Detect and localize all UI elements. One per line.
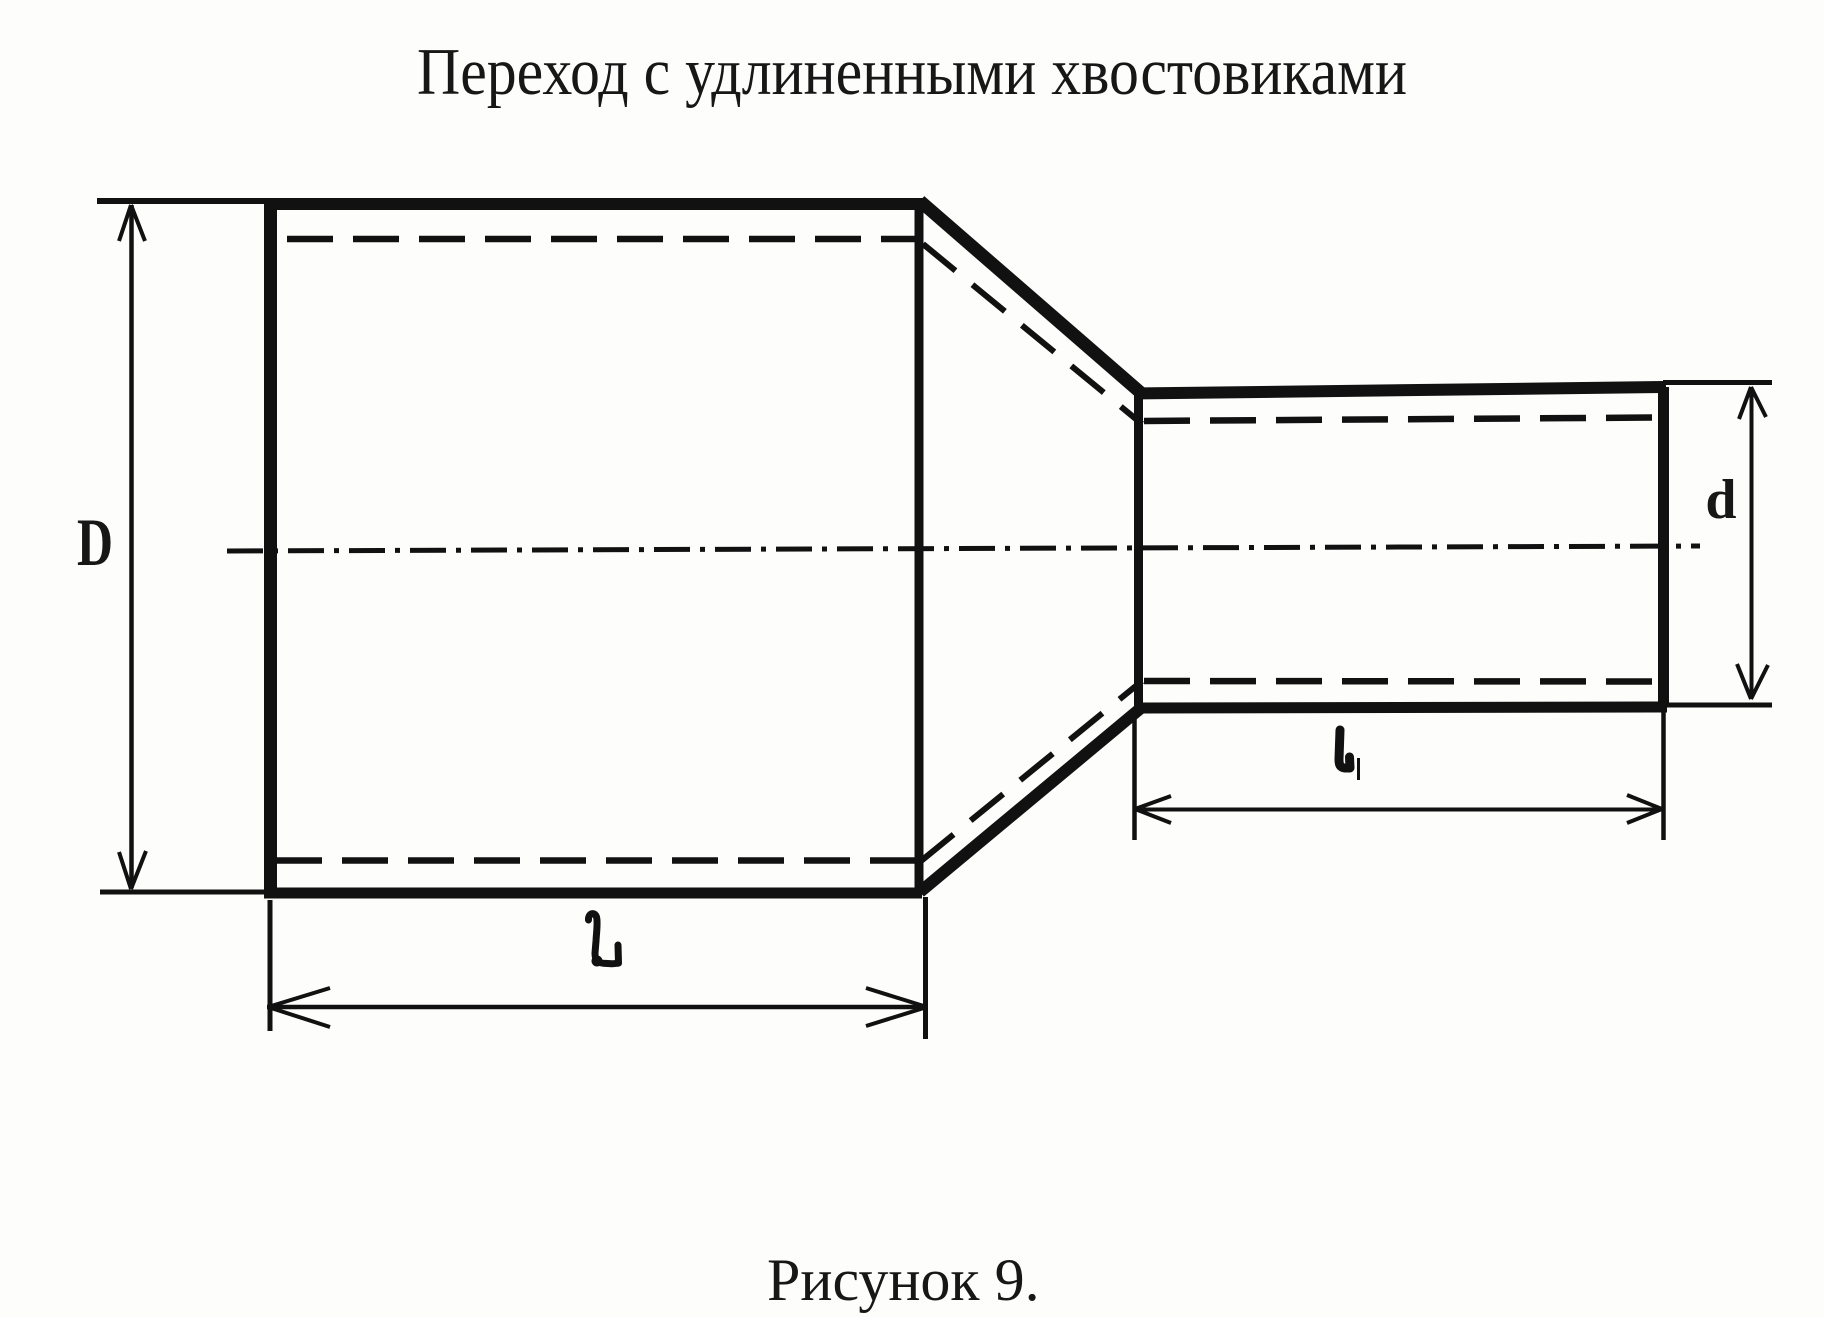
svg-text:Переход с удлиненными хвостови: Переход с удлиненными хвостовиками xyxy=(417,35,1407,109)
svg-text:D: D xyxy=(77,504,113,580)
svg-text:d: d xyxy=(1705,469,1736,531)
svg-text:Рисунок 9.: Рисунок 9. xyxy=(767,1247,1040,1313)
